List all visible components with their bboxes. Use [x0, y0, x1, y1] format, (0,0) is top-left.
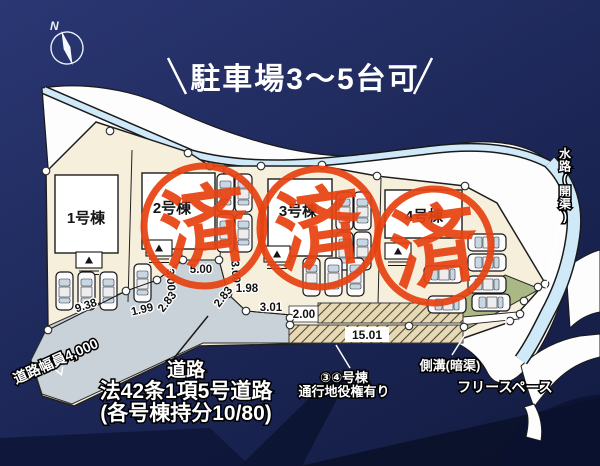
sold-stamp-text: 済	[269, 174, 371, 284]
page-title: 駐車場3～5台可	[190, 62, 419, 96]
title-slash-left	[168, 58, 186, 94]
site-plan-svg: 1号棟 2号棟 3号棟 4号棟	[0, 0, 600, 466]
dim-2-00: 2.00	[293, 309, 315, 321]
entrance-marker	[76, 252, 102, 275]
building-1-label: 1号棟	[67, 209, 106, 227]
dim-3-01: 3.01	[260, 302, 283, 314]
road-name-line1: 道路	[167, 358, 206, 381]
dim-1-98: 1.98	[236, 283, 259, 295]
free-space-label: フリースペース	[457, 379, 553, 395]
road-name-line3: (各号棟持分10/80)	[100, 401, 272, 425]
easement-line2: 通行地役権有り	[298, 384, 389, 399]
compass-north-label: N	[50, 19, 59, 33]
site-plan-page: 1号棟 2号棟 3号棟 4号棟	[0, 0, 600, 466]
easement-line1: ③④号棟	[320, 370, 369, 385]
gutter-label: 側溝(暗渠)	[419, 358, 481, 373]
road-name-line2: 法42条1項5号道路	[100, 379, 274, 403]
sold-stamp-text: 済	[154, 172, 256, 282]
dim-15-01: 15.01	[352, 328, 382, 342]
easement-label: ③④号棟 通行地役権有り	[298, 370, 389, 399]
sold-stamp-text: 済	[384, 192, 486, 302]
